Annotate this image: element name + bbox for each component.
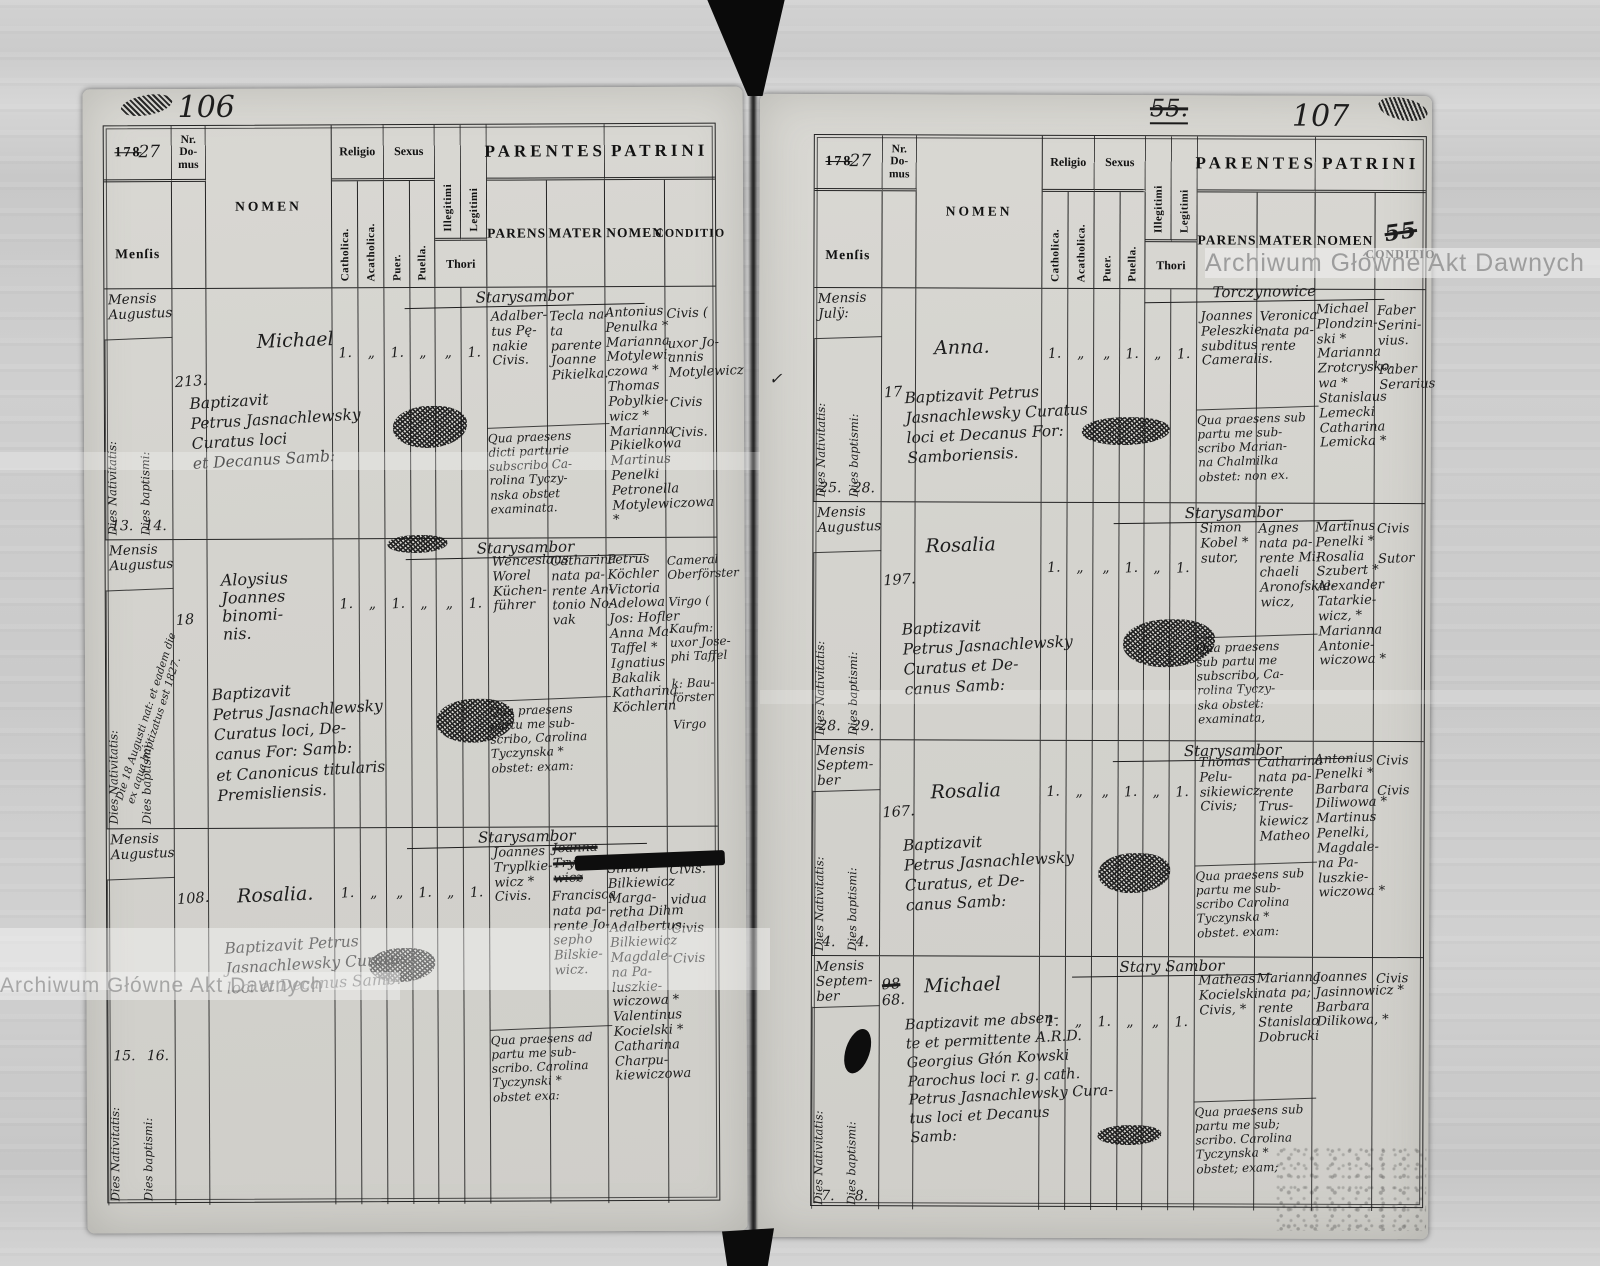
illegitimi-label: Illegitimi <box>441 184 453 232</box>
puer-header: Puer. <box>1094 192 1120 288</box>
dies-nativitatis-value: 4. <box>822 935 835 951</box>
record-row: Mensis Augustus Dies Nativitatis: Dies b… <box>107 826 720 1206</box>
dies-nativitatis-label: Dies Nativitatis: <box>813 552 848 739</box>
record-row: Mensis Augustus Dies Nativitatis: Dies b… <box>104 286 716 540</box>
midwife-note: Qua praesens sub partu me sub- scribo Ma… <box>1197 406 1321 485</box>
check-mark: ✓ <box>769 370 782 388</box>
midwife-note: Qua praesens sub partu me subscribo, Ca-… <box>1196 634 1321 727</box>
puella-mark: 1. <box>413 828 440 1204</box>
dies-values: 13.14. <box>105 519 172 535</box>
nomen-cell: Rosalia. <box>209 828 337 1205</box>
thori-label: Thori <box>1156 258 1185 273</box>
conditio-label: CONDITIO <box>1365 247 1435 262</box>
nr-domus-body-spacer <box>882 191 916 287</box>
conditio-entry: Civis. vidua Civis Civis <box>666 856 735 968</box>
house-number: 167. <box>882 803 914 821</box>
dies-baptismi-value: 8. <box>855 1189 868 1205</box>
dies-nativitatis-value: 13. <box>111 520 133 536</box>
acatholica-mark: „ <box>361 828 389 1204</box>
year-printed: 178 <box>114 145 141 161</box>
conditio-header: CONDITIO <box>665 180 715 286</box>
nr-domus-header: Nr. Do- mus <box>172 126 206 182</box>
patrini-nomen-cell: Antonius Penelki * Barbara Diliwowa * Ma… <box>1313 742 1374 957</box>
mensis-cell: Mensis Augustus Dies Nativitatis: Dies b… <box>105 540 174 828</box>
illegitimi-label: Illegitimi <box>1152 185 1164 233</box>
month-entry: Mensis Augustus <box>104 288 173 341</box>
month-entry: Mensis Julÿ: <box>813 287 882 339</box>
month-entry: Mensis Septem- ber <box>811 955 880 1008</box>
illegitimi-header: Illegitimi <box>435 125 462 241</box>
child-name: Anna. <box>934 335 1042 360</box>
nomen-label: NOMEN <box>235 198 302 214</box>
house-number: 68. <box>881 992 913 1010</box>
year-printed: 178 <box>825 154 852 170</box>
year-handwritten: 27 <box>849 152 871 171</box>
month-entry: Mensis Augustus <box>106 828 175 881</box>
village-header: Starysambor <box>1113 503 1353 524</box>
nr-domus-label: Nr. Do- mus <box>178 134 199 170</box>
patrini-nomen-header: NOMEN <box>1315 193 1375 289</box>
conditio-cell: Cameral Oberförster Virgo ( Kaufm: uxor … <box>666 538 717 826</box>
parens-label: PARENS <box>1197 232 1256 248</box>
mensis-cell: Mensis Augustus Dies Nativitatis: Dies b… <box>813 502 882 739</box>
child-name: Michael <box>256 329 332 353</box>
conditio-header: 55 CONDITIO <box>1375 193 1425 289</box>
dies-nativitatis-label: Dies Nativitatis: <box>812 791 847 955</box>
dies-nativitatis-label: Dies Nativitatis: <box>814 338 849 501</box>
sexus-label: Sexus <box>1105 155 1134 170</box>
right-page-number: 107 <box>1292 100 1349 134</box>
thori-header: Thori <box>435 241 487 287</box>
book-spine-shadow <box>748 90 758 1232</box>
patrini-label: PATRINI <box>611 140 708 160</box>
acatholica-label: Acatholica. <box>1075 224 1087 282</box>
dies-baptismi-value: 16. <box>147 1049 169 1065</box>
catholica-label: Catholica. <box>339 228 351 281</box>
parens-cell: Wenceslaus Worel Küchen- führer <box>488 538 549 826</box>
dies-values: 25.28. <box>814 481 881 497</box>
illegitimi-header: Illegitimi <box>1145 136 1171 242</box>
mensis-cell: Mensis Julÿ: Dies Nativitatis: Dies bapt… <box>814 288 883 501</box>
legitimi-header: Legitimi <box>461 125 488 241</box>
parens-header: PARENS <box>1197 192 1257 288</box>
year-handwritten: 27 <box>138 143 160 162</box>
dies-nativitatis-label: Dies Nativitatis: <box>105 339 140 539</box>
parens-label: PARENS <box>487 225 546 241</box>
child-name: Rosalia <box>925 533 1041 558</box>
house-cell: 18 <box>173 540 208 828</box>
dies-baptismi-value: 28. <box>853 481 875 497</box>
legitimi-mark: 1. <box>464 828 492 1204</box>
house-number: 213. <box>174 373 206 391</box>
dies-subcolumns: Dies Nativitatis: Dies baptismi: <box>812 791 880 955</box>
dies-baptismi-value: 4. <box>856 935 869 951</box>
dies-nativitatis-value: 28. <box>818 719 840 735</box>
mater-header: MATER <box>547 180 605 286</box>
month-entry: Mensis Augustus <box>813 501 882 553</box>
struck-old-number: 55 <box>1383 218 1419 247</box>
puella-header: Puella. <box>1120 192 1145 288</box>
parens-cell: Joannes Tryplkie- wicz * Civis. <box>490 827 552 1203</box>
puella-header: Puella. <box>410 181 435 287</box>
puer-label: Puer. <box>391 254 403 281</box>
parens-header: PARENS <box>487 180 547 286</box>
patrini-nomen-cell: Michael Plondzin- ski * Marianna Zrotcry… <box>1315 290 1376 503</box>
village-header: Stary Sambor <box>1072 957 1272 978</box>
dies-values: 15.16. <box>108 1049 175 1065</box>
dies-subcolumns: Dies Nativitatis: Dies baptismi: <box>105 339 173 539</box>
right-register-table: 17827 Nr. Do- mus NOMEN Religio Sexus Il… <box>810 134 1427 1208</box>
religio-header: Religio <box>1043 136 1095 192</box>
legitimi-label: Legitimi <box>467 188 479 232</box>
religio-label: Religio <box>339 144 375 159</box>
mater-header: MATER <box>1257 193 1315 289</box>
mensis-cell: Mensis Septem- ber Dies Nativitatis: Die… <box>812 740 881 955</box>
dies-nativitatis-value: 15. <box>113 1050 135 1066</box>
nomen-label: NOMEN <box>946 203 1013 219</box>
dies-nativitatis-value: 7. <box>821 1189 834 1205</box>
nr-domus-header: Nr. Do- mus <box>883 135 917 191</box>
year-cell: 17827 <box>815 135 883 191</box>
thori-header: Thori <box>1145 242 1197 288</box>
mensis-cell: Mensis Augustus Dies Nativitatis: Dies b… <box>107 829 177 1205</box>
month-entry: Mensis Septem- ber <box>812 739 881 792</box>
house-number: 197. <box>883 571 915 589</box>
register-scan: 106 17827 Nr. Do- mus NOMEN Religio Sexu… <box>0 0 1600 1266</box>
dies-baptismi-label: Dies baptismi: <box>139 339 173 539</box>
acatholica-label: Acatholica. <box>365 223 377 281</box>
parentes-header: PARENTES <box>1198 136 1316 192</box>
sexus-header: Sexus <box>384 125 435 181</box>
mater-cell: Catharina nata pa- rente An- tonio No- v… <box>548 538 607 826</box>
dies-baptismi-value: 14. <box>144 519 166 535</box>
child-name: Michael <box>924 973 1040 998</box>
dies-values: 7.8. <box>811 1189 878 1205</box>
baptizavit-note: Baptizavit me absen- te et permittente A… <box>905 1001 1221 1148</box>
mensis-header: Menſis <box>814 191 882 287</box>
mensis-cell: Mensis Augustus Dies Nativitatis: Dies b… <box>104 289 173 539</box>
house-number: 108. <box>176 890 208 908</box>
parentes-label: PARENTES <box>485 141 607 162</box>
nr-domus-body-spacer <box>172 182 206 288</box>
mater-label: MATER <box>1259 233 1313 249</box>
dies-subcolumns: Dies Nativitatis: Dies baptismi: <box>107 879 175 1205</box>
nomen-header: NOMEN <box>206 125 333 288</box>
dies-nativitatis-label: Dies Nativitatis: <box>107 879 142 1205</box>
record-row: Mensis Septem- ber Dies Nativitatis: Die… <box>811 955 1423 1211</box>
religio-header: Religio <box>332 125 384 181</box>
puer-label: Puer. <box>1101 255 1113 282</box>
dies-baptismi-label: Dies baptismi: <box>141 879 175 1205</box>
puer-mark: „ <box>387 828 415 1204</box>
right-page: 55. 107 ✓ 17827 Nr. Do- mus NOMEN Religi… <box>756 94 1432 1239</box>
left-table-header: 17827 Nr. Do- mus NOMEN Religio Sexus Il… <box>104 124 716 289</box>
left-page: 106 17827 Nr. Do- mus NOMEN Religio Sexu… <box>83 87 748 1234</box>
mensis-cell: Mensis Septem- ber Dies Nativitatis: Die… <box>811 956 880 1209</box>
dies-values: 28.29. <box>813 719 880 735</box>
mensis-label: Menſis <box>825 247 870 263</box>
dies-nativitatis-value: 25. <box>819 481 841 497</box>
patrini-header: PATRINI <box>1316 137 1426 193</box>
dies-baptismi-label: Dies baptismi: <box>848 338 882 501</box>
patrini-nomen-cell: Petrus Köchler Victoria Adelowa Jos: Hof… <box>606 538 667 826</box>
catholica-mark: 1. <box>335 828 363 1204</box>
patrini-label: PATRINI <box>1322 153 1419 173</box>
spine-black-top <box>700 0 792 96</box>
puella-label: Puella. <box>416 245 428 281</box>
struck-old-folio-number: 55. <box>1150 95 1188 124</box>
thori-label: Thori <box>446 256 475 271</box>
patrini-nomen-cell: Simon Bilkiewicz Marga- retha Dihm Adalb… <box>608 827 670 1203</box>
puella-label: Puella. <box>1126 247 1138 283</box>
conditio-entry: Civis Sutor <box>1374 515 1441 567</box>
catholica-label: Catholica. <box>1049 229 1061 282</box>
dies-baptismi-label: Dies baptismi: <box>846 791 880 955</box>
village-header: Starysambor <box>1113 741 1353 762</box>
conditio-entry: Civis ( uxor Jo- annis Motylewicz Civis … <box>663 300 733 442</box>
nomen-header: NOMEN <box>916 135 1043 287</box>
legitimi-label: Legitimi <box>1178 190 1190 234</box>
village-header: Torczynowice <box>1144 282 1384 303</box>
acatholica-header: Acatholica. <box>1068 192 1094 288</box>
midwife-note: Qua praesens sub partu me sub- scribo Ca… <box>1195 862 1319 941</box>
child-name: Rosalia <box>930 779 1040 804</box>
acatholica-header: Acatholica. <box>358 181 384 287</box>
dies-baptismi-value: 29. <box>852 719 874 735</box>
conditio-label: CONDITIO <box>655 225 725 240</box>
sexus-label: Sexus <box>394 144 423 159</box>
patrini-nomen-cell: Joannes Jasinnowicz * Barbara Dilikowa, … <box>1312 958 1373 1211</box>
child-name: Rosalia. <box>237 883 335 908</box>
conditio-entry: Civis <box>1373 965 1439 988</box>
mensis-header: Menſis <box>104 182 172 288</box>
child-name: Aloysius Joannes binomi- nis. <box>220 567 334 643</box>
right-table-header: 17827 Nr. Do- mus NOMEN Religio Sexus Il… <box>814 135 1426 289</box>
mater-label: MATER <box>548 225 602 241</box>
sexus-header: Sexus <box>1095 136 1146 192</box>
house-cell: 108. <box>175 829 211 1205</box>
record-row: Mensis Augustus Dies Nativitatis: Dies b… <box>105 537 717 829</box>
puer-header: Puer. <box>384 181 410 287</box>
illegitimi-mark: „ <box>438 828 466 1204</box>
ink-squiggle <box>1376 93 1430 125</box>
record-row: Mensis Julÿ: Dies Nativitatis: Dies bapt… <box>814 287 1426 503</box>
dies-subcolumns: Dies Nativitatis: Dies baptismi: <box>813 552 881 739</box>
midwife-note: Qua praesens dicti parturie subscribo Ca… <box>487 423 612 517</box>
ink-squiggle <box>119 91 174 120</box>
left-register-table: 17827 Nr. Do- mus NOMEN Religio Sexus Il… <box>103 123 721 1204</box>
parentes-label: PARENTES <box>1196 153 1318 173</box>
mensis-label: Menſis <box>115 246 160 262</box>
dies-nativitatis-label: Dies Nativitatis: <box>811 1007 846 1209</box>
patrini-header: PATRINI <box>605 124 715 180</box>
conditio-entry: Civis Civis <box>1373 747 1440 799</box>
nr-domus-label: Nr. Do- mus <box>889 144 910 180</box>
patrini-nomen-cell: Martinus Penelki * Rosalia Szubert * Ale… <box>1314 504 1375 741</box>
year-cell: 17827 <box>104 126 172 182</box>
mater-cell: Joanna Tryplkie- wicz Francisca nata pa-… <box>550 827 610 1203</box>
record-row: Mensis Augustus Dies Nativitatis: Dies b… <box>813 501 1425 741</box>
dies-subcolumns: Dies Nativitatis: Dies baptismi: <box>814 338 882 501</box>
religio-label: Religio <box>1050 155 1086 170</box>
record-row: Mensis Septem- ber Dies Nativitatis: Die… <box>812 739 1424 957</box>
catholica-header: Catholica. <box>1042 192 1068 288</box>
conditio-entry: Cameral Oberförster Virgo ( Kaufm: uxor … <box>663 547 735 733</box>
catholica-header: Catholica. <box>332 181 358 287</box>
month-entry: Mensis Augustus <box>105 539 174 592</box>
midwife-note: Qua praesens ad partu me sub- scribo. Ca… <box>490 1025 615 1105</box>
legitimi-header: Legitimi <box>1171 136 1197 242</box>
dies-baptismi-label: Dies baptismi: <box>847 552 881 739</box>
patrini-nomen-cell: Antonius Penulka * Marianna Motylewi- cz… <box>605 287 666 537</box>
legitimi-mark: 1. <box>461 288 488 538</box>
parentes-header: PARENTES <box>487 124 605 181</box>
left-page-number: 106 <box>178 91 235 125</box>
dies-values: 4.4. <box>812 935 879 951</box>
conditio-entry: Faber Serini- vius. Faber Serarius <box>1374 297 1442 394</box>
